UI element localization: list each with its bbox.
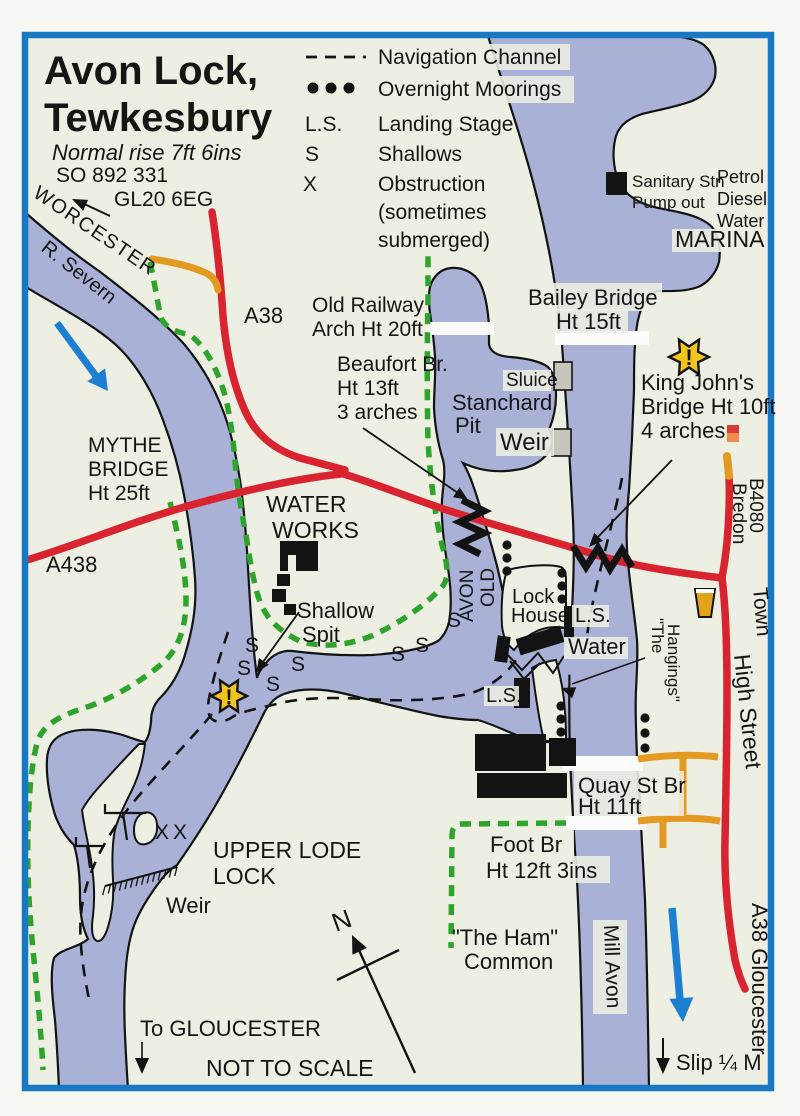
svg-text:MARINA: MARINA: [675, 226, 765, 252]
svg-text:Normal rise 7ft 6ins: Normal rise 7ft 6ins: [52, 140, 242, 165]
svg-text:S: S: [245, 634, 259, 657]
svg-text:Mill Avon: Mill Avon: [599, 924, 625, 1008]
svg-text:Ht 11ft: Ht 11ft: [578, 794, 641, 819]
svg-text:Shallow: Shallow: [297, 598, 374, 623]
svg-text:King John's: King John's: [641, 370, 754, 395]
svg-text:NOT TO SCALE: NOT TO SCALE: [206, 1055, 373, 1081]
svg-text:LOCK: LOCK: [213, 863, 276, 889]
svg-text:Landing Stage: Landing Stage: [378, 113, 513, 136]
svg-text:Bredon: Bredon: [728, 483, 749, 544]
svg-text:X: X: [303, 173, 317, 196]
svg-text:Stanchard: Stanchard: [452, 390, 552, 415]
svg-text:Avon Lock,: Avon Lock,: [44, 49, 258, 93]
svg-text:"The Ham": "The Ham": [452, 925, 558, 950]
svg-text:A38 Gloucester: A38 Gloucester: [747, 903, 772, 1055]
svg-text:OLD: OLD: [478, 568, 499, 607]
svg-text:X: X: [155, 821, 169, 844]
svg-text:Obstruction: Obstruction: [378, 173, 485, 196]
svg-text:L.S.: L.S.: [486, 685, 522, 707]
svg-text:SO 892 331: SO 892 331: [56, 164, 168, 187]
svg-text:To GLOUCESTER: To GLOUCESTER: [140, 1016, 321, 1041]
svg-text:A438: A438: [46, 552, 97, 577]
svg-text:WORKS: WORKS: [272, 517, 359, 543]
svg-text:Beaufort Br.: Beaufort Br.: [337, 353, 448, 376]
svg-text:Diesel: Diesel: [717, 189, 767, 209]
svg-text:Pump out: Pump out: [632, 193, 705, 212]
svg-text:Ht 25ft: Ht 25ft: [88, 482, 150, 505]
svg-text:Overnight Moorings: Overnight Moorings: [378, 78, 561, 101]
svg-text:Sluice: Sluice: [506, 370, 558, 391]
svg-text:submerged): submerged): [378, 229, 490, 252]
svg-text:Petrol: Petrol: [717, 167, 764, 187]
svg-text:BRIDGE: BRIDGE: [88, 458, 169, 481]
svg-text:A38: A38: [244, 303, 283, 328]
svg-text:Old Railway: Old Railway: [312, 294, 425, 317]
svg-text:Common: Common: [464, 949, 553, 974]
svg-text:S: S: [237, 657, 251, 680]
svg-text:4 arches: 4 arches: [641, 418, 725, 443]
svg-text:(sometimes: (sometimes: [378, 201, 487, 224]
svg-text:Navigation Channel: Navigation Channel: [378, 46, 561, 69]
svg-text:Tewkesbury: Tewkesbury: [44, 96, 273, 140]
svg-text:Spit: Spit: [302, 622, 340, 647]
svg-text:3 arches: 3 arches: [337, 401, 418, 424]
svg-text:L.S.: L.S.: [305, 113, 342, 136]
svg-text:House: House: [511, 605, 569, 627]
svg-text:X: X: [173, 821, 187, 844]
svg-text:Town: Town: [748, 586, 775, 637]
svg-text:S: S: [391, 643, 405, 666]
svg-text:WATER: WATER: [266, 491, 347, 517]
svg-text:Hangings": Hangings": [664, 624, 683, 702]
svg-text:Pit: Pit: [455, 413, 481, 438]
svg-text:S: S: [305, 143, 319, 166]
svg-text:Arch Ht 20ft: Arch Ht 20ft: [312, 318, 423, 341]
svg-text:Ht 15ft: Ht 15ft: [556, 309, 621, 334]
svg-text:Foot Br: Foot Br: [490, 832, 562, 857]
svg-text:GL20 6EG: GL20 6EG: [114, 188, 213, 211]
svg-text:Water: Water: [568, 634, 626, 659]
svg-text:L.S.: L.S.: [575, 605, 611, 627]
svg-text:Bailey Bridge: Bailey Bridge: [528, 285, 658, 310]
svg-text:Slip ¼ M: Slip ¼ M: [676, 1050, 762, 1075]
svg-text:S: S: [266, 673, 280, 696]
svg-text:Weir: Weir: [166, 893, 211, 918]
svg-text:Ht 13ft: Ht 13ft: [337, 377, 399, 400]
svg-text:S: S: [415, 634, 429, 657]
svg-text:Sanitary Stn: Sanitary Stn: [632, 172, 725, 191]
svg-text:S: S: [447, 609, 461, 632]
svg-text:UPPER LODE: UPPER LODE: [213, 837, 361, 863]
svg-text:Bridge Ht 10ft: Bridge Ht 10ft: [641, 394, 776, 419]
svg-text:S: S: [291, 653, 305, 676]
svg-text:!: !: [685, 345, 692, 370]
svg-text:Ht 12ft 3ins: Ht 12ft 3ins: [486, 858, 597, 883]
svg-text:Shallows: Shallows: [378, 143, 462, 166]
svg-text:!: !: [226, 686, 233, 709]
svg-text:Weir: Weir: [500, 429, 549, 456]
svg-text:MYTHE: MYTHE: [88, 434, 162, 457]
